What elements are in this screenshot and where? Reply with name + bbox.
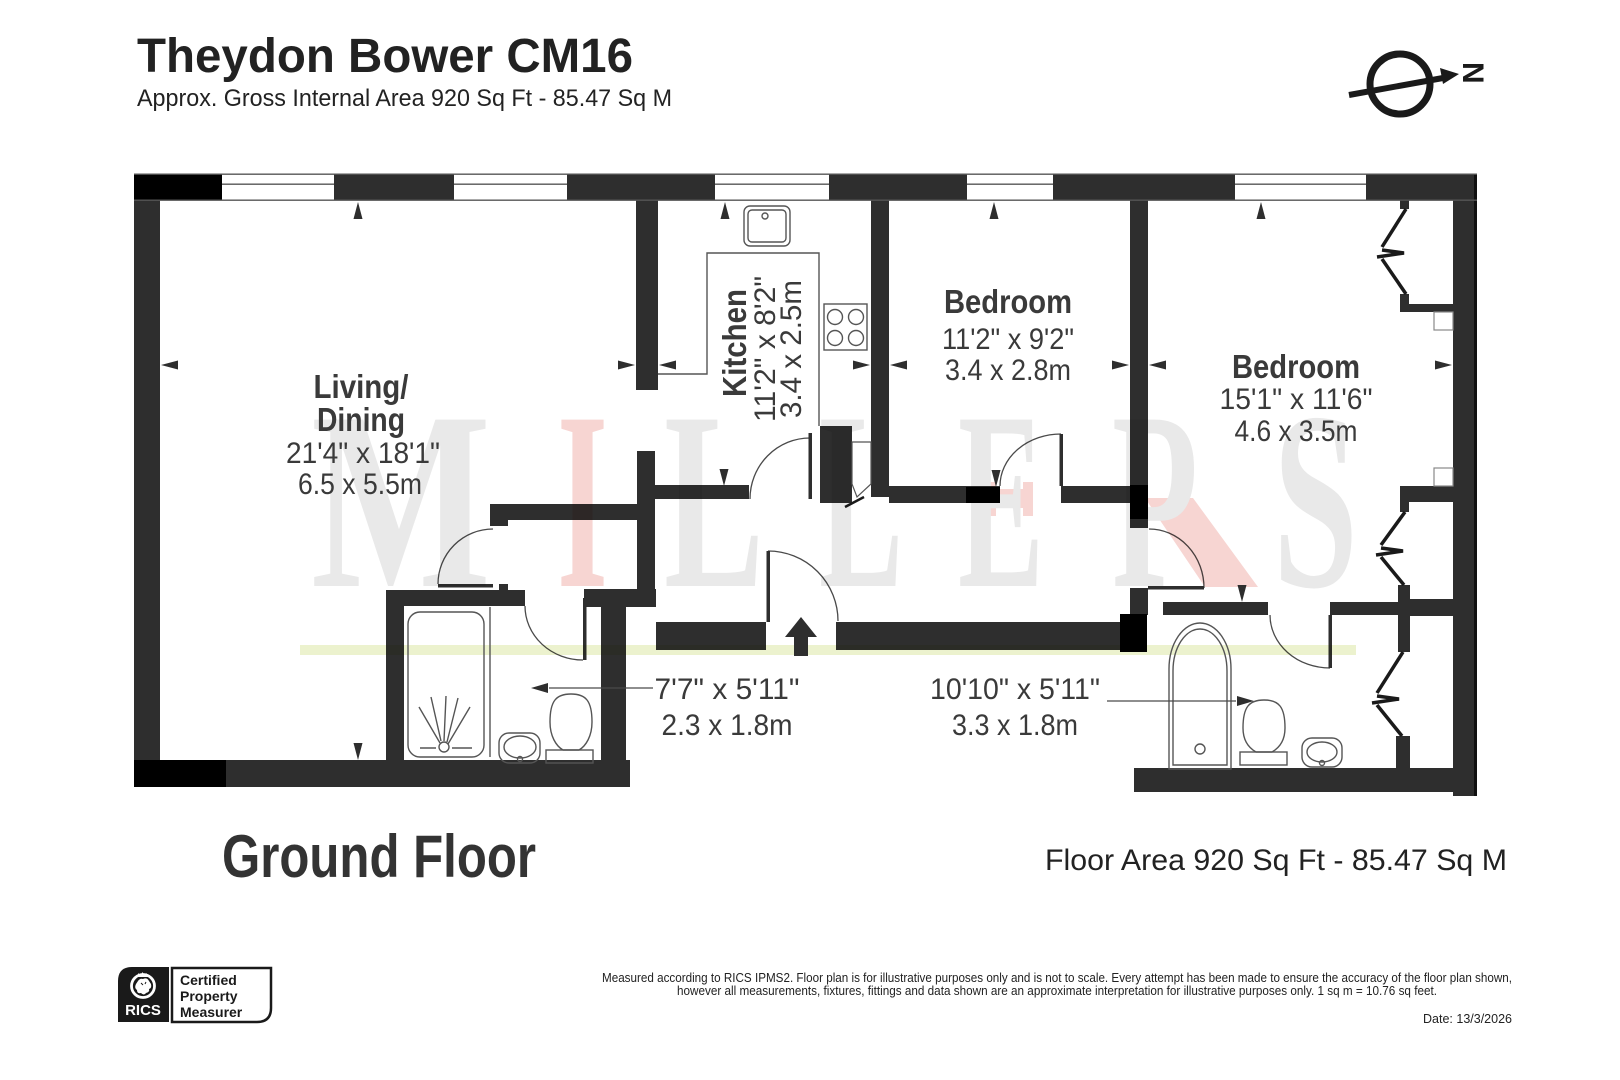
svg-text:Certified: Certified (180, 972, 237, 988)
svg-text:10'10" x 5'11": 10'10" x 5'11" (930, 673, 1100, 706)
svg-text:Bedroom: Bedroom (1232, 348, 1360, 385)
svg-text:Floor Area 920 Sq Ft - 85.47 S: Floor Area 920 Sq Ft - 85.47 Sq M (1045, 844, 1507, 877)
svg-text:however all measurements, fixt: however all measurements, fixtures, fitt… (677, 984, 1437, 998)
svg-text:N: N (1456, 62, 1489, 84)
svg-text:P: P (1112, 360, 1198, 641)
svg-text:E: E (958, 360, 1044, 641)
svg-text:Approx. Gross Internal Area 92: Approx. Gross Internal Area 920 Sq Ft - … (137, 85, 672, 112)
svg-text:Ground Floor: Ground Floor (222, 823, 536, 890)
svg-text:6.5 x 5.5m: 6.5 x 5.5m (298, 468, 422, 501)
svg-text:3.4 x 2.8m: 3.4 x 2.8m (945, 354, 1071, 387)
svg-text:4.6 x 3.5m: 4.6 x 3.5m (1235, 415, 1358, 448)
svg-text:Measured according to RICS IPM: Measured according to RICS IPMS2. Floor … (602, 971, 1512, 985)
svg-text:Bedroom: Bedroom (944, 283, 1072, 320)
svg-text:2.3 x 1.8m: 2.3 x 1.8m (662, 709, 793, 742)
svg-text:21'4" x 18'1": 21'4" x 18'1" (286, 437, 440, 470)
svg-text:3.3 x 1.8m: 3.3 x 1.8m (952, 709, 1078, 742)
svg-text:I: I (557, 360, 608, 641)
svg-text:Dining: Dining (317, 401, 405, 438)
svg-text:Kitchen: Kitchen (716, 289, 753, 397)
svg-text:RICS: RICS (125, 1002, 161, 1019)
svg-text:Measurer: Measurer (180, 1004, 243, 1020)
svg-text:11'2" x 9'2": 11'2" x 9'2" (942, 323, 1074, 356)
svg-text:Date: 13/3/2026: Date: 13/3/2026 (1423, 1012, 1512, 1026)
svg-text:L: L (819, 360, 903, 641)
svg-text:7'7" x 5'11": 7'7" x 5'11" (655, 673, 800, 706)
svg-text:Theydon Bower CM16: Theydon Bower CM16 (137, 30, 633, 83)
svg-text:3.4 x 2.5m: 3.4 x 2.5m (775, 280, 808, 418)
svg-text:Property: Property (180, 988, 238, 1004)
svg-text:15'1" x 11'6": 15'1" x 11'6" (1220, 383, 1373, 416)
svg-text:Living/: Living/ (314, 368, 409, 405)
